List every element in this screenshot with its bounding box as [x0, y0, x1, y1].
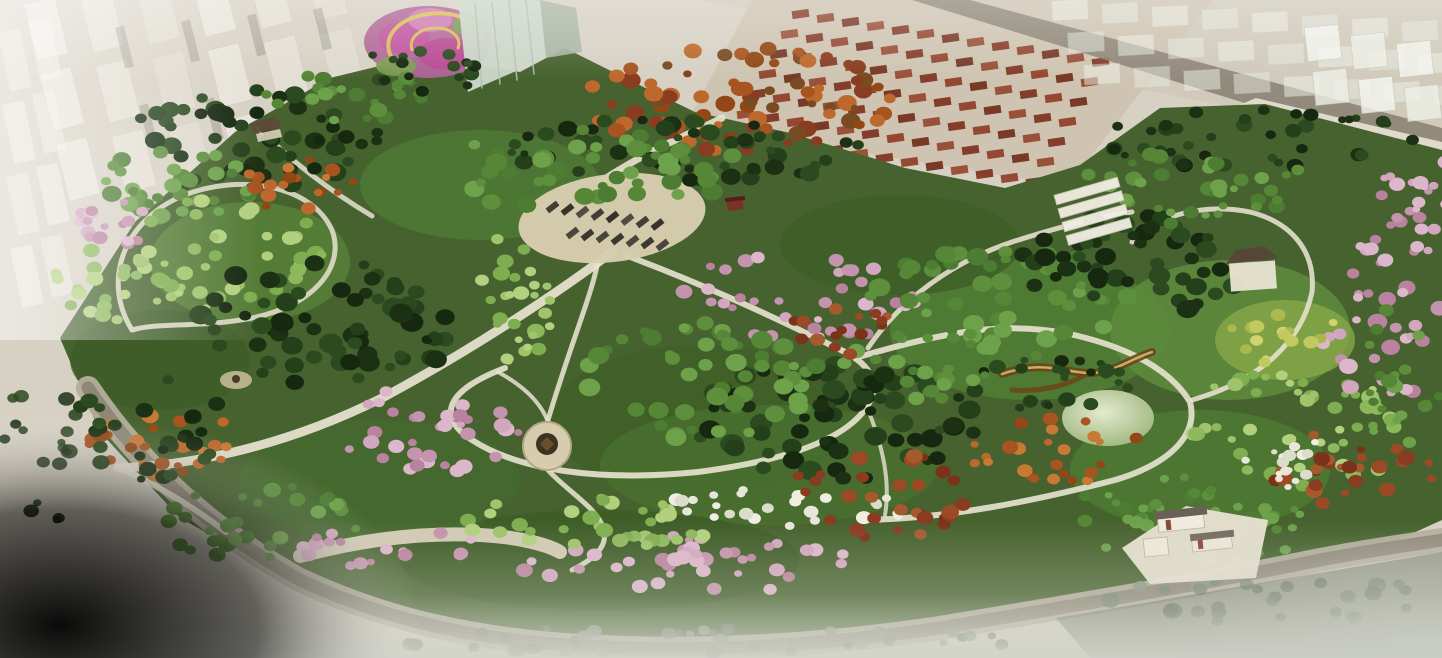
east-pavilion-base [1229, 260, 1277, 291]
haze-top [0, 0, 1442, 80]
scene-layers [0, 0, 1442, 658]
park-aerial-rendering [0, 0, 1442, 658]
west-deck-kiosk [232, 375, 240, 383]
park-masterplan-image: Aerial bird's-eye rendering of a landsca… [0, 0, 1442, 658]
